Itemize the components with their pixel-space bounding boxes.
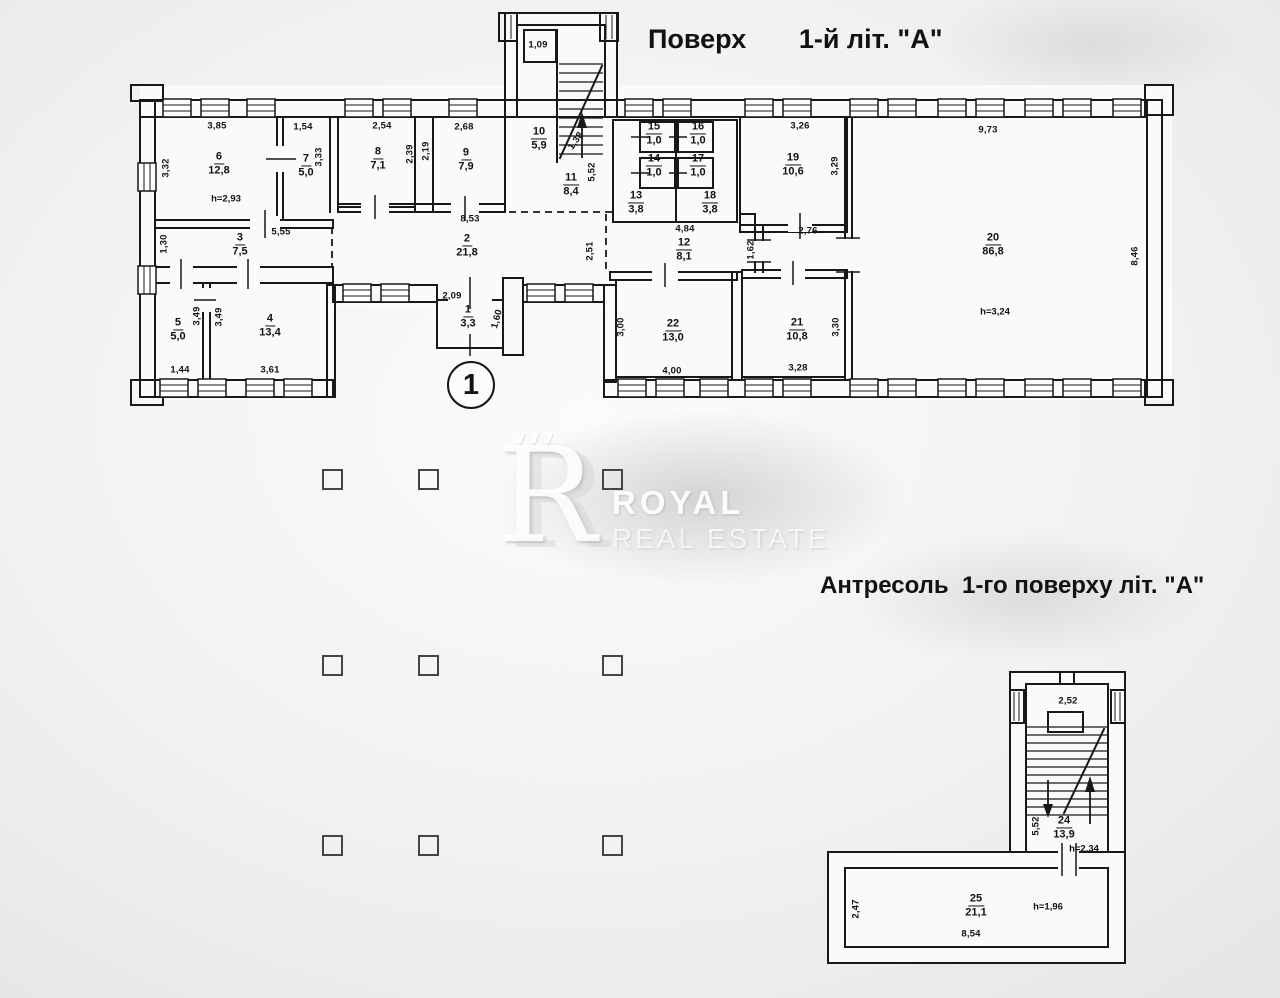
small-square-marker [602,655,623,676]
plan-number-badge: 1 [447,361,495,409]
small-square-marker [602,835,623,856]
small-square-marker [322,835,343,856]
page-stage: Поверх 1-й літ. "А" Антресоль 1-го повер… [0,0,1280,998]
small-square-marker [418,835,439,856]
small-square-marker [322,469,343,490]
mezzanine-title: Антресоль 1-го поверху літ. "А" [820,572,1204,600]
small-square-marker [602,469,623,490]
small-square-marker [418,469,439,490]
floor1-title: Поверх 1-й літ. "А" [648,24,943,55]
small-square-marker [322,655,343,676]
floor-plans-drawing [0,0,1280,998]
plan-paper-fill [140,13,1172,963]
scanned-floorplan-page: { "titles": { "floor1": "Поверх 1-й літ.… [0,0,1280,998]
small-square-marker [418,655,439,676]
